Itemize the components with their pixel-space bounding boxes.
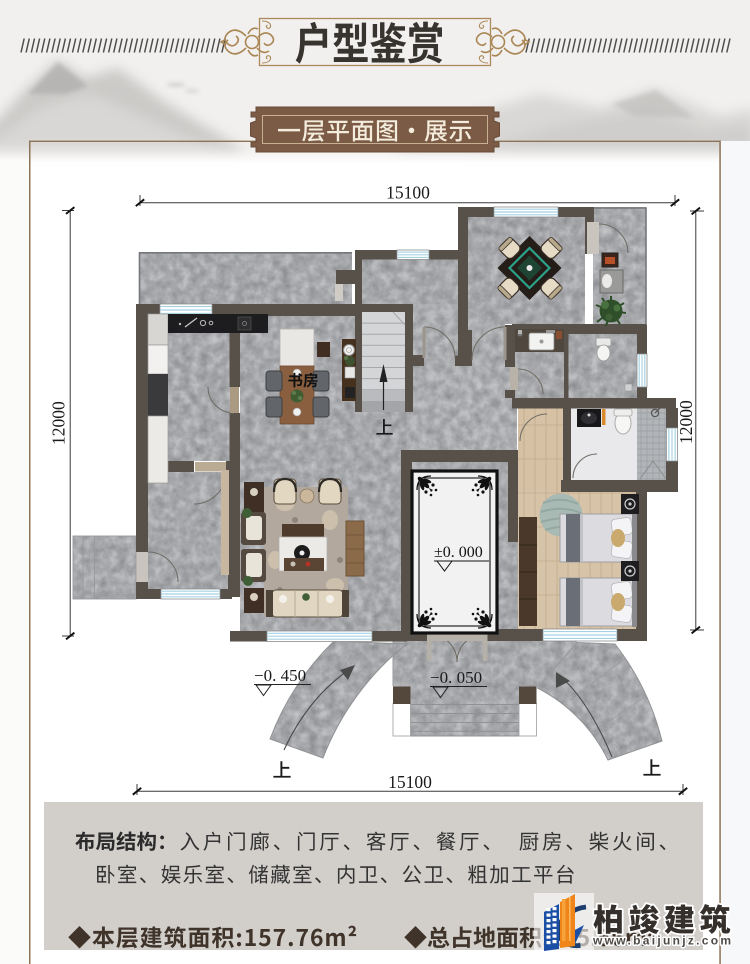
svg-text:15100: 15100 [388, 772, 432, 792]
svg-text:12000: 12000 [676, 400, 696, 444]
svg-text:±0. 000: ±0. 000 [434, 544, 483, 561]
svg-text:−0. 450: −0. 450 [254, 666, 306, 685]
svg-text:15100: 15100 [386, 183, 430, 203]
svg-text:www.baijunjz.com: www.baijunjz.com [592, 934, 733, 948]
svg-text:12000: 12000 [49, 401, 69, 445]
svg-text:−0. 050: −0. 050 [430, 668, 482, 687]
